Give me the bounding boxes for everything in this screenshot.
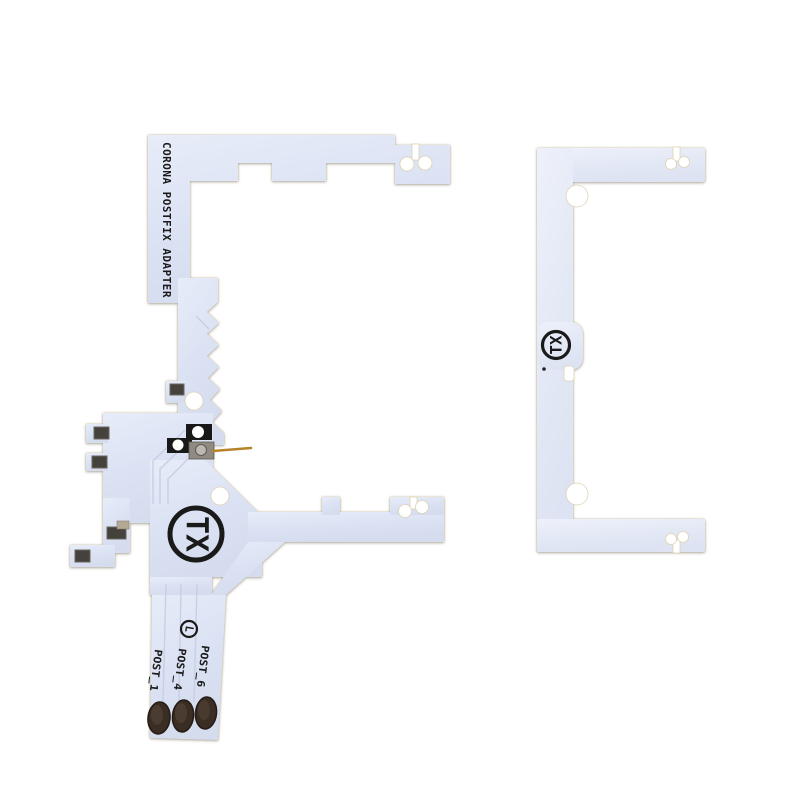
resistor-component xyxy=(117,521,129,529)
left-pcb-board xyxy=(70,135,450,740)
metal-contact-hole xyxy=(196,445,207,456)
through-hole xyxy=(173,440,184,451)
solder-pad xyxy=(75,550,90,562)
breakaway-slit xyxy=(673,147,680,161)
breakaway-hole xyxy=(418,156,432,170)
through-hole xyxy=(192,426,204,438)
breakaway-hole xyxy=(678,532,689,543)
corner-relief-hole xyxy=(566,483,588,505)
tx-logo-text: TX xyxy=(179,516,214,552)
pcb-photo-svg: TX L CORONA POSTFIX ADAPTER POST_1 POST_… xyxy=(0,0,800,800)
breakaway-hole xyxy=(416,501,429,514)
left-pcb-right-bar xyxy=(248,512,444,542)
solder-pad xyxy=(92,456,107,468)
breakaway-hole xyxy=(399,505,412,518)
corner-relief-hole xyxy=(566,185,588,207)
gold-pin xyxy=(213,448,251,451)
breakaway-hole xyxy=(679,157,690,168)
keyhole-cutout xyxy=(211,487,229,505)
corona-postfix-adapter-text: CORONA POSTFIX ADAPTER xyxy=(160,142,173,298)
solder-pad xyxy=(170,384,184,395)
contact-pad-sheen xyxy=(198,700,210,720)
left-pcb-bar-tab xyxy=(322,497,340,515)
solder-pad xyxy=(94,427,109,439)
fiducial-dot xyxy=(542,367,546,371)
breakaway-hole xyxy=(666,534,677,545)
breakaway-hole xyxy=(666,159,677,170)
product-photo: TX L CORONA POSTFIX ADAPTER POST_1 POST_… xyxy=(0,0,800,800)
contact-pad-sheen xyxy=(175,703,187,723)
breakaway-hole xyxy=(400,157,414,171)
tx-logo-text: TX xyxy=(547,335,566,355)
contact-pads xyxy=(146,696,218,735)
contact-pad-sheen xyxy=(151,705,163,725)
inner-edge-notch xyxy=(564,366,574,381)
breakaway-slit xyxy=(412,144,419,160)
keyhole-cutout xyxy=(185,392,203,410)
